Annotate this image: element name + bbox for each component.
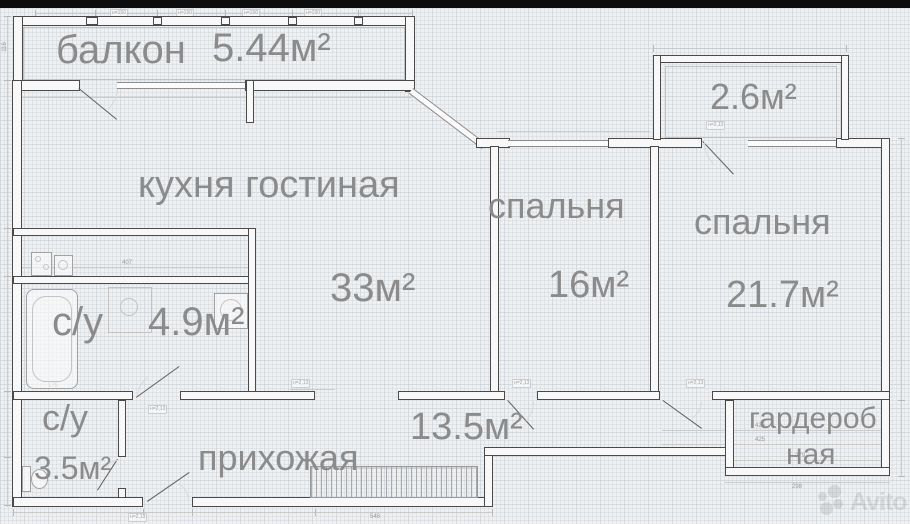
dimension-number: 425 [755,437,765,443]
dimension-tick [4,80,11,81]
room-label-bathroom-small: с/у [42,400,88,436]
dimension-tick [4,16,11,17]
window-mullion [288,17,297,25]
dimension-line [35,13,412,14]
wall [12,80,22,507]
dimension-tick [898,138,905,139]
room-area-bathroom-small: 3.5м² [34,452,111,484]
room-label-wardrobe-line1: гардероб [749,404,877,434]
dimension-tick [492,509,493,516]
wall [118,400,126,457]
door-height-tag: н=2,13 [128,513,147,522]
wall [484,447,734,456]
door-arc [137,367,180,396]
dimension-tick [898,400,905,401]
dimension-line [725,482,890,483]
room-area-bathroom-large: 4.9м² [148,302,244,342]
wall [712,391,890,400]
wall-stub [246,80,254,123]
avito-watermark-text: Avito [850,488,907,517]
dimension-number: 548 [370,514,380,520]
dimension-tick [315,509,316,516]
stove [31,252,52,276]
dimension-tick [4,391,11,392]
wall [537,391,660,400]
room-label-balcony: балкон [56,30,186,70]
window-mullion [153,17,162,25]
dimension-tick [4,276,11,277]
wall [841,55,849,140]
window [508,140,610,147]
dimension-number: 298 [792,484,802,490]
floor-plan: 138 120 120 120 120 102 н=150 н=150 н=15… [0,0,910,524]
dimension-tick [653,45,654,52]
door-arc [704,142,736,174]
door-height-tag: н=2,13 [512,379,531,388]
room-label-bathroom-large: с/у [52,302,103,342]
wall [192,497,493,507]
dimension-number: 407 [122,260,132,266]
dimension-line [662,444,881,445]
wall [398,391,505,400]
dimension-tick [846,45,847,52]
window-chamfer [409,88,487,149]
dimension-line [653,48,849,49]
room-label-wardrobe-line2: ная [786,440,836,470]
toilet-tank [22,466,31,492]
dimension-tick [192,509,193,516]
dimension-tick [4,228,11,229]
dimension-line [13,512,492,513]
wall [653,55,849,63]
top-letterbox-bar [0,0,910,8]
window [117,82,245,89]
stove-burner [43,264,49,270]
door-height-tag: н=2,13 [291,379,310,388]
wall [725,400,734,476]
dimension-tick [898,476,905,477]
wall [13,228,256,236]
window-mullion [221,17,230,25]
wall [650,146,659,400]
room-label-hallway: прихожая [198,440,358,476]
stove-burner [35,256,41,262]
sink-bowl [120,298,138,316]
dimension-line [497,131,650,132]
window [748,140,838,147]
room-label-kitchen: кухня гостиная [138,166,400,204]
wall [248,228,256,400]
room-area-hallway: 13.5м² [410,408,523,446]
room-area-balcony: 5.44м² [212,28,331,68]
kitchen-sink-bowl [58,260,68,270]
room-area-bedroom-large: 21.7м² [726,276,839,314]
wall [13,80,80,91]
window-mullion [86,17,98,25]
dimension-tick [13,509,14,516]
room-label-bedroom-small: спальня [488,188,625,224]
wall [13,276,256,284]
door-height-tag: н=2,13 [148,405,167,414]
door-height-tag: н=2,13 [686,379,705,388]
door-height-tag: н=2,13 [706,121,725,130]
avito-logo-dot [820,502,833,515]
wall [653,55,661,140]
dimension-number: 116 [2,42,8,52]
dimension-line [7,16,8,507]
dimension-tick [4,505,11,506]
opening-line [290,389,335,390]
dimension-line [901,138,902,476]
wall [484,447,493,507]
room-area-kitchen: 33м² [330,268,415,308]
dimension-tick [4,457,11,458]
avito-logo-dot [818,492,827,501]
wall [245,80,415,91]
wall [13,497,143,507]
window-mullion [354,17,363,25]
room-area-loggia: 2.6м² [710,79,797,115]
avito-logo-dot [828,485,841,498]
wall [881,138,890,476]
wall [180,391,315,400]
avito-watermark: Avito [816,484,910,518]
room-area-bedroom-small: 16м² [548,266,629,304]
room-label-bedroom-large: спальня [694,204,831,240]
avito-logo-dot [833,499,843,509]
